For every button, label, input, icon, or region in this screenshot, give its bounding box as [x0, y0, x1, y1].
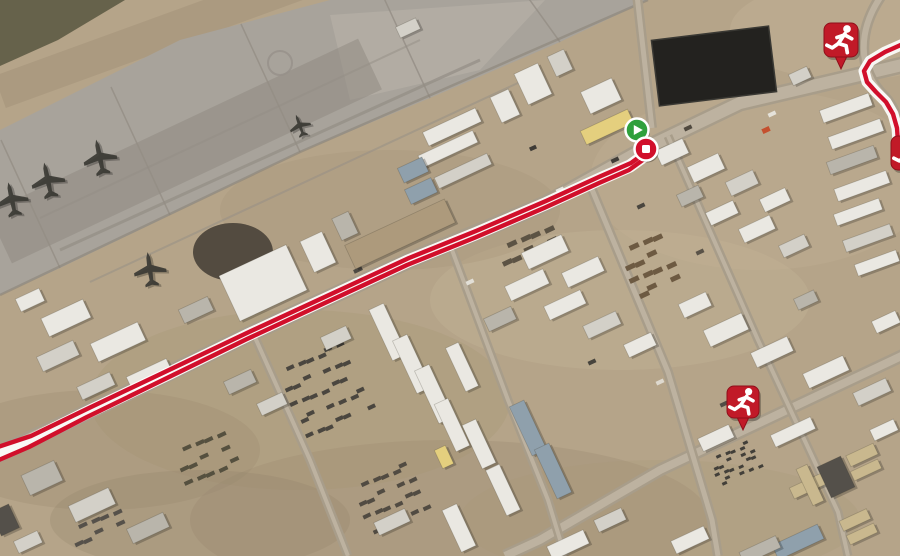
map-viewport[interactable] — [0, 0, 900, 556]
route-finish-marker[interactable] — [635, 138, 660, 163]
map-canvas[interactable] — [0, 0, 900, 556]
dark-pad-structure — [651, 26, 776, 106]
stop-icon — [642, 145, 650, 153]
